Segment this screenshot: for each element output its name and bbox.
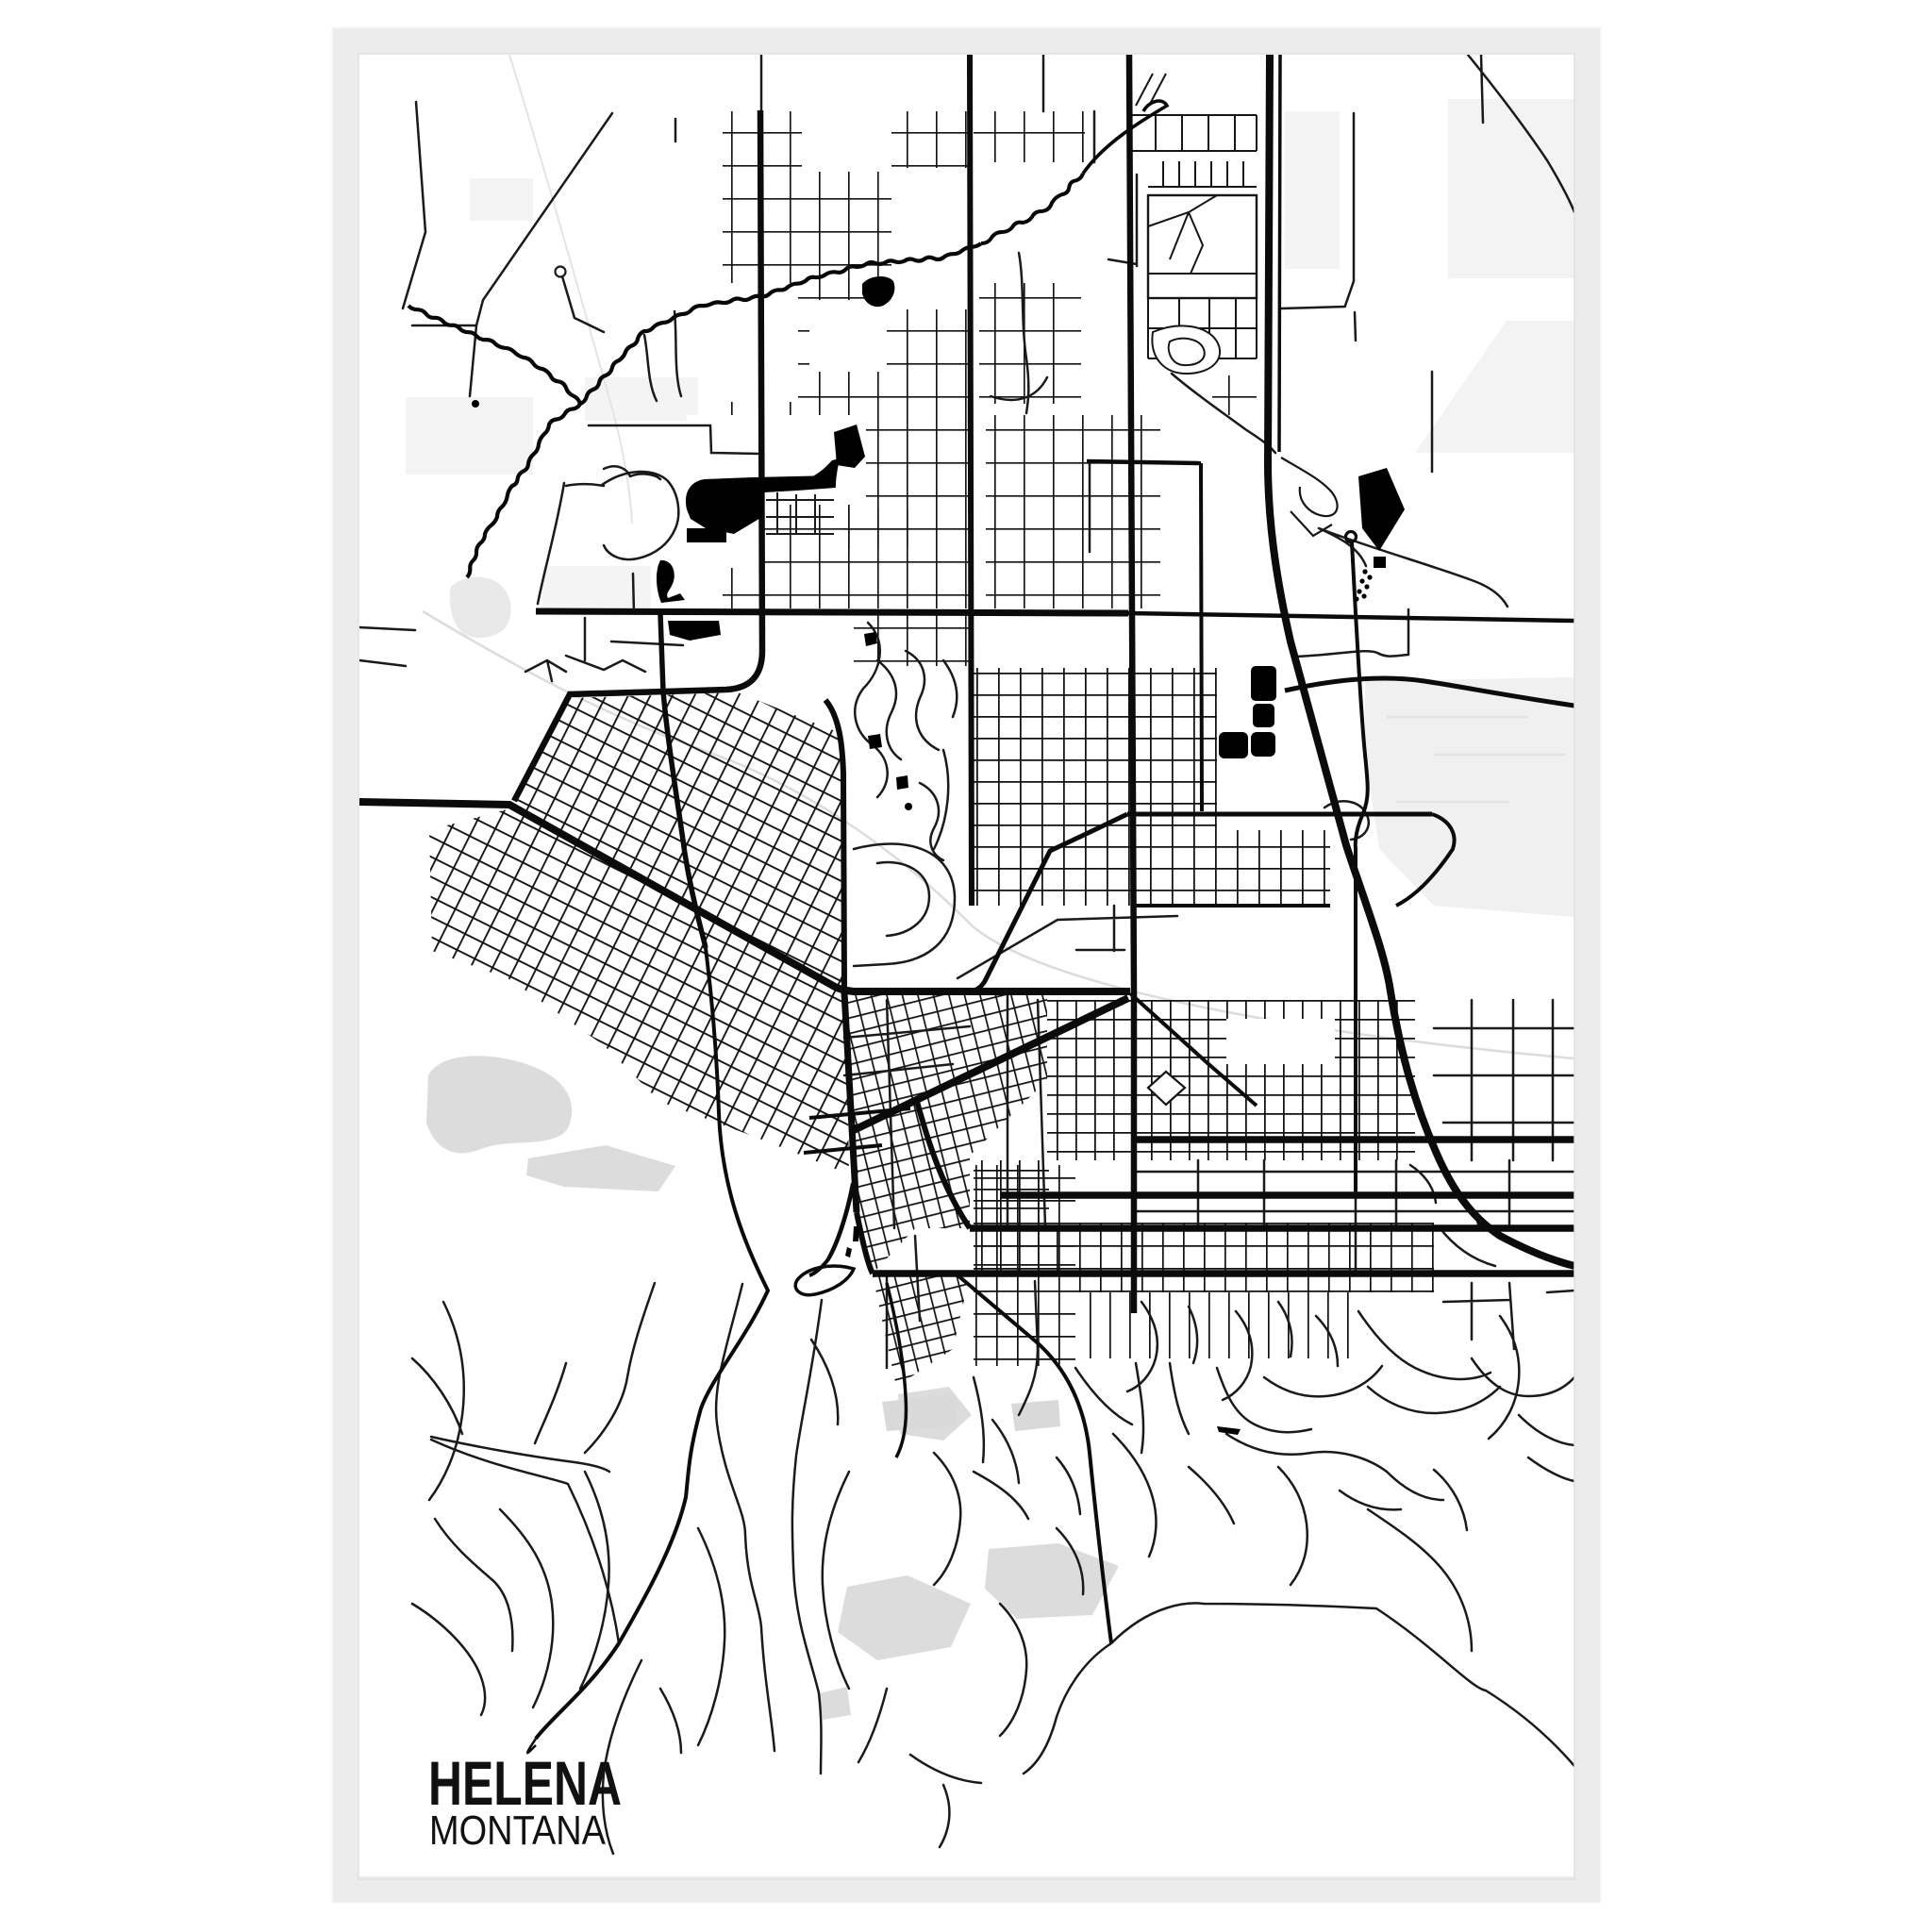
svg-text:MONTANA: MONTANA (429, 1807, 607, 1854)
